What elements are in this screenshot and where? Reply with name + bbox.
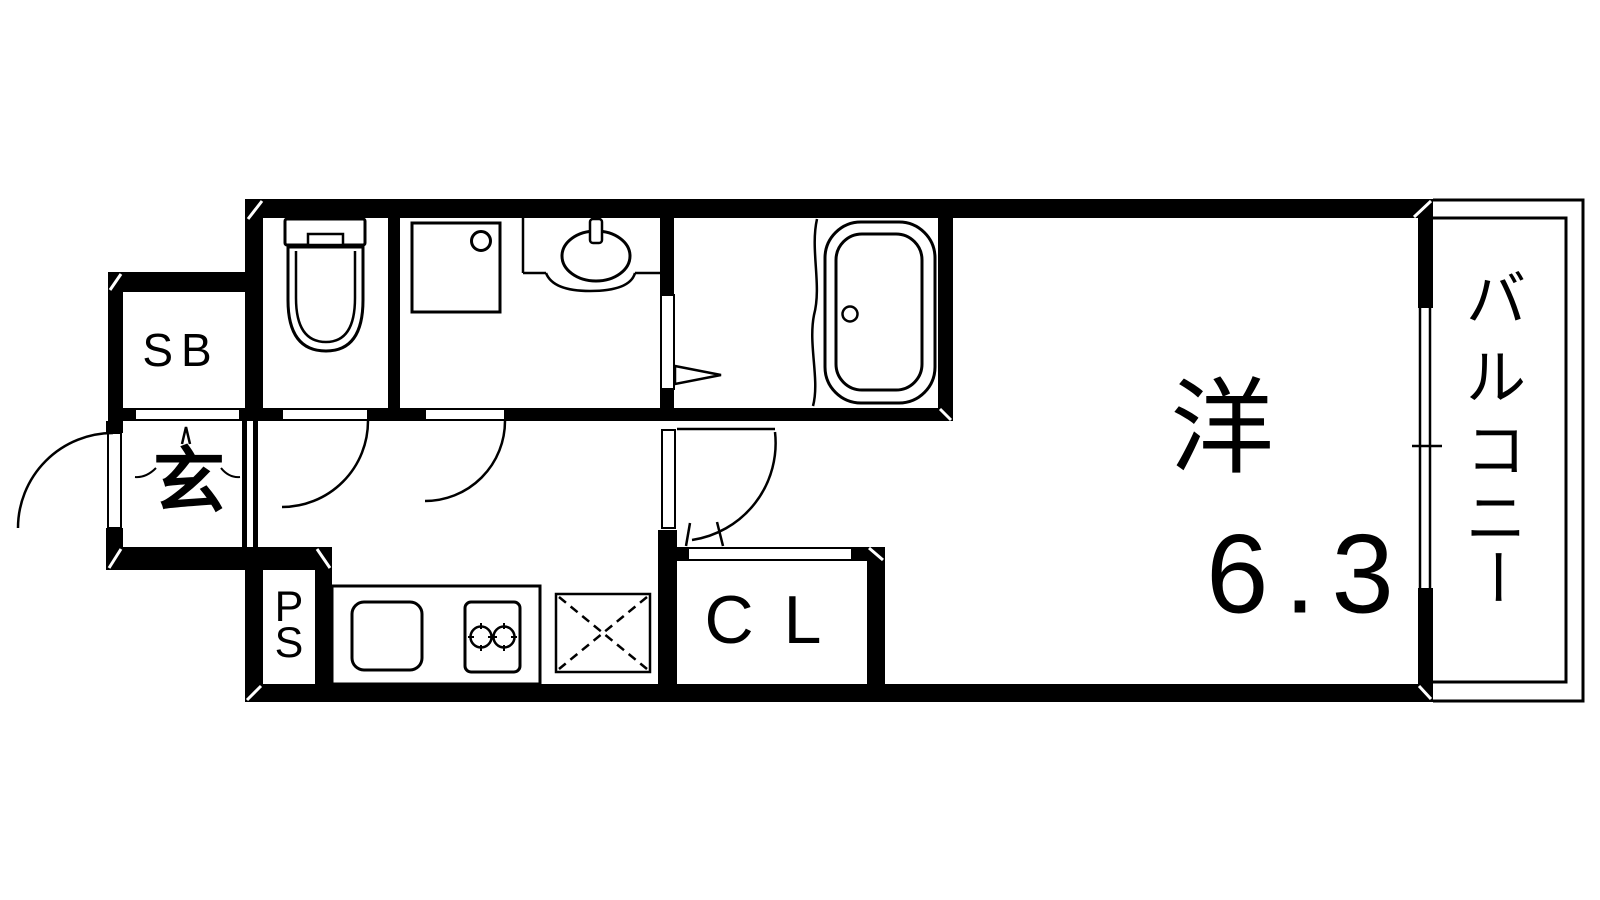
bath-apron-curve: [812, 219, 817, 406]
shoebox-label: SB: [142, 324, 219, 376]
floor-plan-drawing: SB 玄 P S CL 洋 6.3 バ ル コ ニ ー: [0, 0, 1600, 900]
entrance-hall-partition-a: [242, 421, 247, 547]
bathroom-right-wall: [938, 218, 953, 408]
entrance-wall-bottom: [106, 547, 332, 570]
svg-text:ニ: ニ: [1466, 486, 1526, 553]
closet-label: CL: [705, 582, 852, 658]
outer-wall-top: [245, 199, 1433, 218]
svg-text:バ: バ: [1466, 267, 1526, 334]
shoebox-wall-top: [108, 272, 248, 292]
refrigerator-space-icon: [556, 594, 650, 672]
washroom-bath-wall-lower: [660, 389, 674, 408]
washroom-door-leaf: [425, 409, 505, 420]
hall-door-arc: [692, 432, 776, 540]
svg-text:ル: ル: [1466, 345, 1526, 412]
toilet-tank-lid: [308, 234, 343, 245]
hall-door-opening: [662, 430, 675, 528]
washing-machine-pan-icon: [412, 223, 500, 312]
closet-door-leaf: [688, 548, 852, 560]
western-room-size-label: 6.3: [1206, 512, 1410, 637]
svg-text:ー: ー: [1463, 547, 1530, 607]
closet-wall-top-left: [660, 547, 688, 561]
closet-wall-right: [867, 547, 885, 684]
kitchen-unit: [332, 586, 540, 684]
shoebox-wall-left: [108, 292, 123, 408]
pipe-space-label-s: S: [275, 619, 304, 667]
toilet-bowl: [288, 247, 363, 351]
toilet-icon: [285, 219, 365, 351]
bath-door-leaf: [661, 295, 674, 389]
toilet-door-leaf: [282, 409, 368, 420]
shoebox-opening: [135, 409, 240, 420]
washroom-door-arc: [425, 421, 505, 501]
entry-door-arc: [18, 433, 113, 528]
window-wall-upper: [1418, 218, 1433, 308]
washer-pan-drain: [472, 232, 491, 251]
floor-plan-page: SB 玄 P S CL 洋 6.3 バ ル コ ニ ー: [0, 0, 1600, 900]
svg-text:コ: コ: [1466, 418, 1526, 485]
bathtub-icon: [812, 219, 935, 406]
refrigerator-outline: [556, 594, 650, 672]
entry-door-leaf: [108, 433, 121, 528]
kitchen-sink-icon: [352, 602, 422, 670]
outer-wall-bottom: [245, 684, 1433, 702]
entry-wall-stub-bottom: [106, 528, 123, 547]
balcony-label: バ ル コ ニ ー: [1463, 267, 1530, 608]
hall-door-stop-left: [686, 523, 690, 546]
washbasin-faucet: [590, 219, 602, 243]
toilet-washroom-partition: [388, 218, 400, 408]
western-room-label: 洋: [1170, 371, 1274, 487]
outer-wall-left-lower: [245, 570, 263, 702]
outer-wall-left-upper: [245, 199, 263, 421]
entry-wall-stub-top: [106, 421, 123, 433]
entrance-label: 玄: [153, 442, 225, 522]
toilet-door-arc: [282, 421, 368, 507]
bath-door-direction-triangle: [675, 366, 721, 384]
window-wall-lower: [1418, 588, 1433, 702]
hall-door-stop-right: [717, 522, 723, 546]
washroom-bath-wall-upper: [660, 218, 674, 295]
entrance-hall-partition-b: [253, 421, 258, 547]
washbasin-icon: [523, 218, 660, 291]
